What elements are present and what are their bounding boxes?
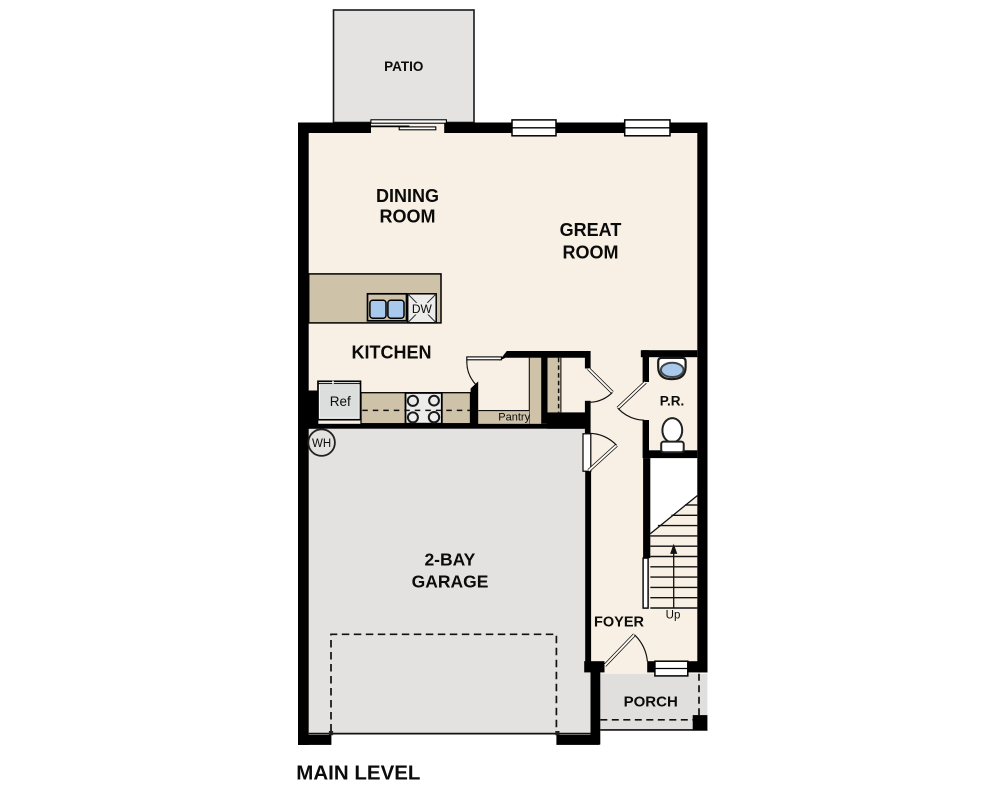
svg-text:MAIN LEVEL: MAIN LEVEL <box>296 762 420 785</box>
svg-text:P.R.: P.R. <box>660 393 685 408</box>
svg-text:DINING: DINING <box>376 186 439 206</box>
svg-text:ROOM: ROOM <box>380 206 436 226</box>
svg-text:ROOM: ROOM <box>563 242 619 262</box>
svg-text:Up: Up <box>666 609 681 621</box>
svg-text:PORCH: PORCH <box>624 694 678 711</box>
svg-text:WH: WH <box>312 438 331 450</box>
svg-text:GREAT: GREAT <box>560 220 622 240</box>
svg-text:KITCHEN: KITCHEN <box>352 343 432 363</box>
svg-text:GARAGE: GARAGE <box>412 571 489 591</box>
svg-text:FOYER: FOYER <box>594 615 644 631</box>
svg-text:Ref: Ref <box>330 394 351 409</box>
svg-text:Pantry: Pantry <box>498 411 530 423</box>
svg-text:PATIO: PATIO <box>384 59 423 74</box>
svg-text:2-BAY: 2-BAY <box>424 550 475 570</box>
svg-text:DW: DW <box>412 302 433 316</box>
